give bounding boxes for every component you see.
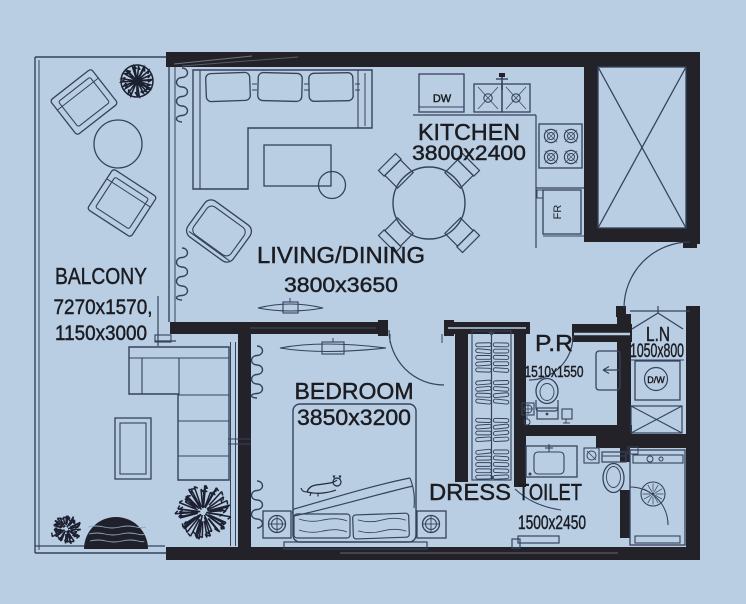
svg-text:1500x2450: 1500x2450 bbox=[518, 513, 586, 534]
svg-text:FR: FR bbox=[552, 205, 564, 220]
svg-text:1150x3000: 1150x3000 bbox=[55, 322, 147, 345]
svg-text:3800x3650: 3800x3650 bbox=[284, 274, 398, 297]
svg-text:3800x2400: 3800x2400 bbox=[412, 142, 526, 165]
svg-text:DW: DW bbox=[433, 93, 452, 105]
svg-text:BEDROOM: BEDROOM bbox=[295, 378, 414, 404]
svg-text:TOILET: TOILET bbox=[518, 479, 582, 505]
svg-text:LIVING/DINING: LIVING/DINING bbox=[257, 242, 425, 268]
svg-text:DRESS: DRESS bbox=[429, 479, 511, 505]
svg-text:7270x1570,: 7270x1570, bbox=[54, 296, 153, 319]
svg-text:D/W: D/W bbox=[647, 375, 665, 385]
svg-text:1510x1550: 1510x1550 bbox=[525, 364, 584, 381]
svg-text:3850x3200: 3850x3200 bbox=[297, 405, 411, 430]
svg-text:BALCONY: BALCONY bbox=[55, 263, 147, 289]
svg-text:1050x800: 1050x800 bbox=[630, 341, 684, 362]
svg-text:P.R: P.R bbox=[535, 330, 573, 356]
